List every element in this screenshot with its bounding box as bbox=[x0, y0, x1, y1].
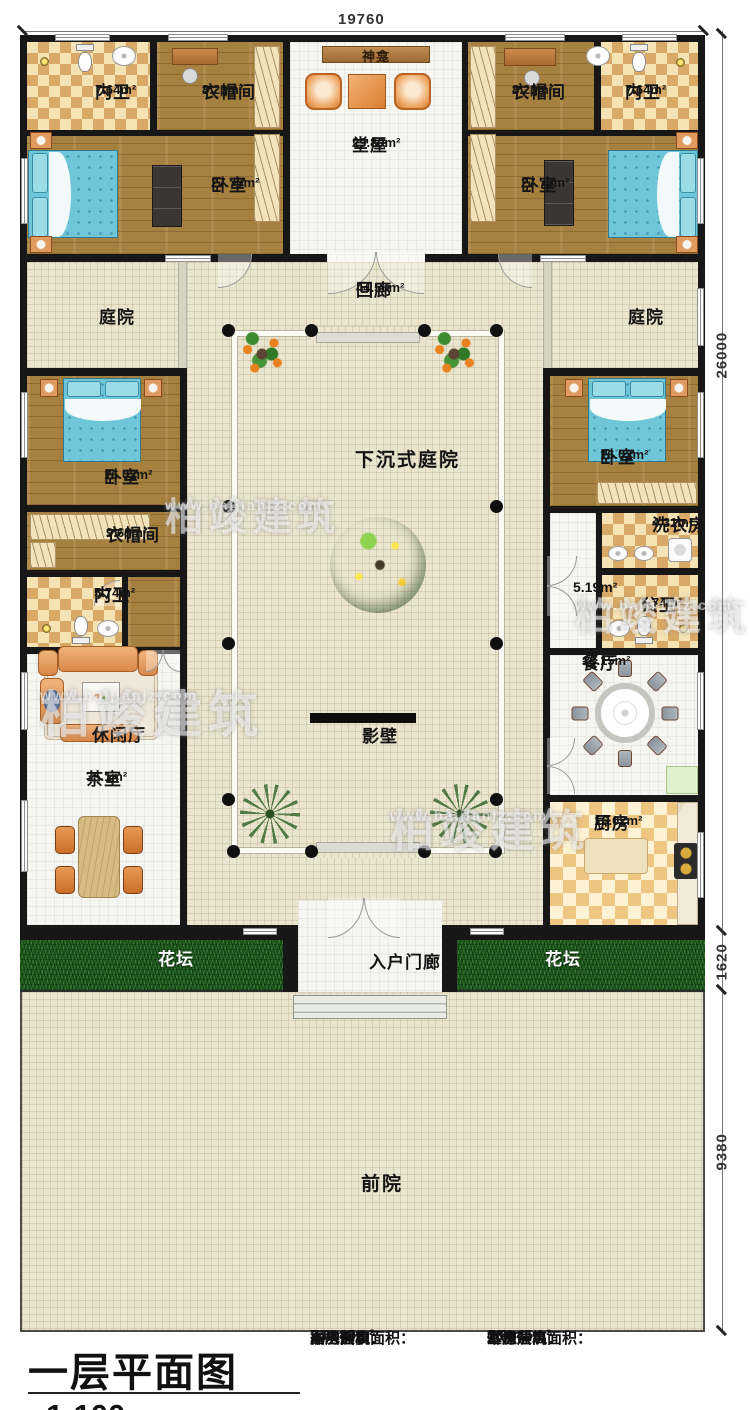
window bbox=[243, 928, 277, 935]
front-yard-floor bbox=[20, 992, 705, 1332]
hall-armchair bbox=[305, 73, 342, 110]
pillow bbox=[680, 153, 696, 193]
toilet bbox=[637, 616, 651, 636]
wardrobe bbox=[597, 482, 697, 504]
toilet bbox=[74, 616, 88, 636]
nightstand bbox=[565, 379, 583, 397]
title-underline bbox=[28, 1392, 300, 1394]
desk bbox=[504, 48, 556, 66]
nightstand bbox=[676, 236, 698, 253]
courtyard-right-railing bbox=[543, 262, 552, 368]
window bbox=[470, 928, 504, 935]
floor-plan-canvas: 19760 26000 1620 9380 bbox=[0, 0, 750, 1410]
stove bbox=[674, 843, 698, 879]
toilet bbox=[630, 44, 648, 51]
pillow bbox=[32, 197, 48, 237]
pillow bbox=[630, 381, 664, 397]
window bbox=[697, 672, 704, 730]
pillow bbox=[32, 153, 48, 193]
left-hall-strip-floor bbox=[128, 577, 180, 647]
bed bbox=[28, 150, 118, 238]
toilet bbox=[72, 637, 90, 644]
sink bbox=[608, 620, 630, 637]
wardrobe bbox=[254, 46, 280, 128]
tea-chair bbox=[123, 866, 143, 894]
shower-head bbox=[40, 57, 49, 66]
desk bbox=[172, 48, 218, 65]
pillow bbox=[105, 381, 139, 397]
sink bbox=[97, 620, 119, 637]
dimension-right-main: 26000 bbox=[714, 329, 731, 379]
column-dot bbox=[222, 793, 235, 806]
window bbox=[168, 34, 228, 41]
palm-plant bbox=[240, 784, 300, 844]
dimension-line-top bbox=[22, 31, 705, 32]
kitchen-island bbox=[584, 838, 648, 874]
tv-cabinet bbox=[152, 165, 182, 227]
bed bbox=[63, 378, 141, 462]
nightstand bbox=[144, 379, 162, 397]
dimension-top: 19760 bbox=[338, 11, 385, 28]
column-dot bbox=[305, 324, 318, 337]
hall-armchair bbox=[394, 73, 431, 110]
wardrobe bbox=[30, 542, 56, 568]
window bbox=[165, 255, 211, 262]
wardrobe bbox=[470, 46, 496, 128]
pillow bbox=[680, 197, 696, 237]
washing-machine bbox=[668, 538, 692, 562]
tea-chair bbox=[123, 826, 143, 854]
column-dot bbox=[222, 324, 235, 337]
window bbox=[21, 392, 28, 458]
column-dot bbox=[489, 845, 502, 858]
shower-head bbox=[676, 58, 685, 67]
shrine-label: 神龛 bbox=[362, 46, 390, 65]
bed-sheet bbox=[657, 152, 679, 237]
column-dot bbox=[227, 845, 240, 858]
column-dot bbox=[305, 845, 318, 858]
column-dot bbox=[490, 500, 503, 513]
person-figure bbox=[44, 690, 60, 712]
tea-table bbox=[78, 816, 120, 898]
courtyard-step-bottom bbox=[316, 842, 420, 853]
sink bbox=[608, 546, 628, 561]
window bbox=[697, 392, 704, 458]
tea-chair bbox=[55, 826, 75, 854]
flowerbed-left bbox=[20, 940, 283, 992]
shower-head bbox=[42, 624, 51, 633]
pillow bbox=[592, 381, 626, 397]
coffee-table bbox=[82, 682, 120, 712]
potted-plant bbox=[430, 332, 478, 376]
window bbox=[505, 34, 565, 41]
desk-chair bbox=[182, 68, 198, 84]
bed-sheet bbox=[49, 152, 71, 237]
pillow bbox=[67, 381, 101, 397]
courtyard-left-railing bbox=[178, 262, 187, 368]
courtyard-right-floor bbox=[552, 262, 698, 368]
window bbox=[697, 832, 704, 898]
potted-plant bbox=[238, 332, 286, 376]
column-dot bbox=[222, 500, 235, 513]
toilet bbox=[632, 52, 646, 72]
window bbox=[21, 800, 28, 872]
palm-plant bbox=[430, 784, 490, 844]
window bbox=[21, 672, 28, 730]
plan-title: 一层平面图 bbox=[28, 1351, 238, 1395]
window bbox=[697, 288, 704, 346]
tea-chair bbox=[55, 866, 75, 894]
dimension-right-bed: 1620 bbox=[714, 941, 731, 981]
dining-chair bbox=[572, 707, 589, 721]
column-dot bbox=[490, 793, 503, 806]
flowerbed-right bbox=[457, 940, 705, 992]
toilet bbox=[76, 44, 94, 51]
porch-steps bbox=[293, 995, 447, 1019]
title-block: 一层平面图1:100 bbox=[28, 1340, 308, 1400]
courtyard-tree bbox=[330, 517, 426, 613]
hall-side-table bbox=[348, 74, 386, 109]
window bbox=[21, 158, 28, 224]
sink bbox=[112, 46, 136, 66]
toilet bbox=[78, 52, 92, 72]
wardrobe bbox=[470, 134, 496, 222]
bed-sheet bbox=[65, 399, 141, 421]
courtyard-step-top bbox=[316, 332, 420, 343]
dining-table-center bbox=[613, 701, 637, 725]
dimension-right-yard: 9380 bbox=[714, 1131, 731, 1171]
dining-cabinet bbox=[666, 766, 698, 794]
bed-sheet bbox=[590, 399, 666, 421]
column-dot bbox=[490, 637, 503, 650]
screen-wall bbox=[310, 713, 416, 723]
nightstand bbox=[30, 132, 52, 149]
window bbox=[540, 255, 586, 262]
window bbox=[622, 34, 677, 41]
nightstand bbox=[676, 132, 698, 149]
column-dot bbox=[490, 324, 503, 337]
window bbox=[55, 34, 110, 41]
armchair bbox=[38, 650, 58, 676]
dining-chair bbox=[662, 707, 679, 721]
sofa bbox=[58, 646, 138, 672]
bed bbox=[608, 150, 698, 238]
dining-chair bbox=[618, 750, 632, 767]
nightstand bbox=[40, 379, 58, 397]
sink bbox=[634, 546, 654, 561]
nightstand bbox=[670, 379, 688, 397]
sink bbox=[586, 46, 610, 66]
window bbox=[697, 158, 704, 224]
column-dot bbox=[222, 637, 235, 650]
toilet bbox=[635, 637, 653, 644]
plan-scale: 1:100 bbox=[46, 1398, 125, 1410]
nightstand bbox=[30, 236, 52, 253]
shower-head bbox=[679, 624, 688, 633]
column-dot bbox=[418, 845, 431, 858]
